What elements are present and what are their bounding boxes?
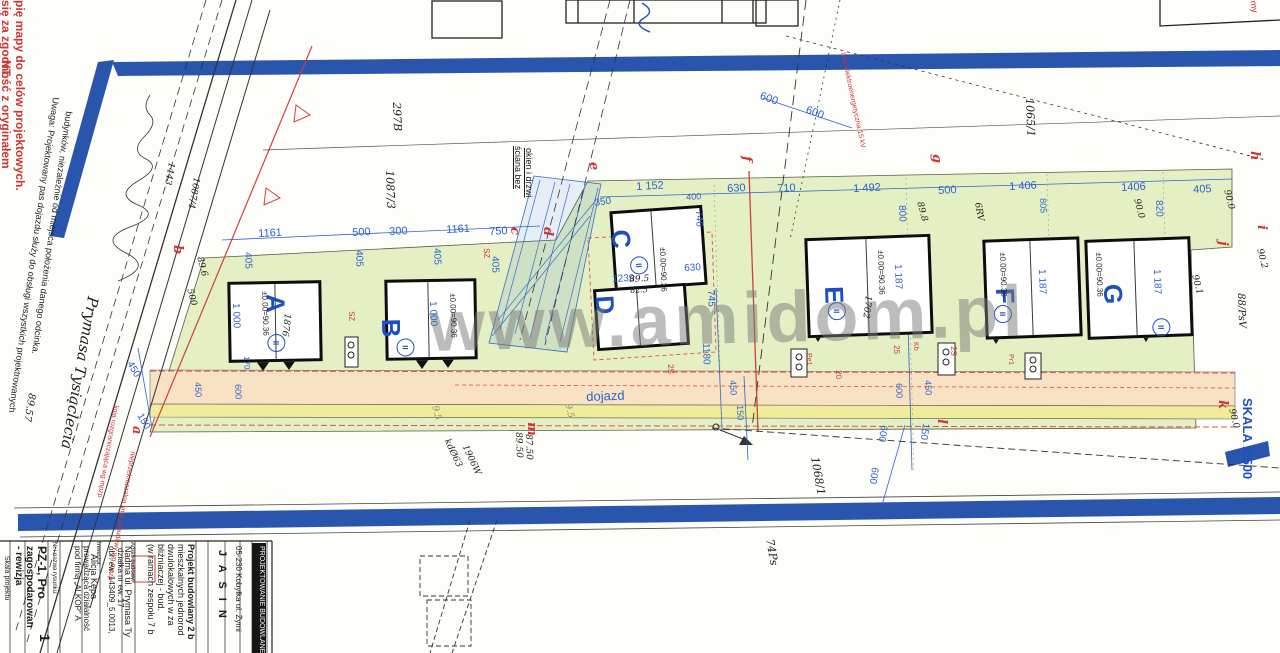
annotation-label: 1 187 xyxy=(892,264,903,289)
grid-marker: h xyxy=(1247,151,1261,160)
wavy-boundary xyxy=(113,95,153,281)
grid-marker: d xyxy=(540,227,554,236)
annotation-label: 1406 xyxy=(1121,182,1146,195)
building-partition xyxy=(1133,241,1138,335)
boundary-triangle xyxy=(294,105,310,122)
building-label: B xyxy=(375,318,406,337)
titleblock-revision-no: 1 xyxy=(37,634,52,642)
parcel-label: 1876 xyxy=(279,313,291,337)
annotation-label: 405 xyxy=(1193,184,1212,196)
storey-symbol: II xyxy=(1152,318,1171,337)
driveway-band xyxy=(150,370,1235,406)
watermark: www.amidom.pl xyxy=(428,270,1027,368)
annotation-label: 82.5 xyxy=(630,286,648,295)
annotation-label: 600 xyxy=(894,383,904,398)
grid-marker: i xyxy=(1254,225,1268,230)
titleblock-project: mieszkalnych jednorod xyxy=(176,544,185,636)
titleblock-drawing-no: PZ-1, Pro xyxy=(35,546,48,599)
annotation-label: SZ xyxy=(482,248,491,259)
annotation-label: 450 xyxy=(728,380,738,395)
annotation-label: 405 xyxy=(431,248,442,265)
building-label: C xyxy=(605,229,637,250)
parcel-label: 1065/1 xyxy=(1023,98,1036,137)
annotation-label: SZ xyxy=(347,311,356,322)
annotation-label: 1 406 xyxy=(1009,181,1037,194)
annotation-label: 600 xyxy=(875,425,888,443)
grid-marker: e xyxy=(586,162,600,170)
storey-symbol: II xyxy=(396,338,414,356)
dashed-structures xyxy=(420,520,497,653)
annotation-label: 400 xyxy=(686,192,702,202)
grid-marker: g xyxy=(929,154,943,163)
storey-symbol: II xyxy=(267,334,285,352)
annotation-label: Pe1 xyxy=(805,353,813,366)
annotation-label: 1161 xyxy=(258,228,282,241)
titleblock-office-address: 05-230 Kobyłka ul. Żymi xyxy=(234,546,242,632)
annotation-label: 630 xyxy=(727,183,746,195)
annotation-label: 2S xyxy=(666,364,675,374)
titleblock-address: obr. ew. 143409_5.0013, xyxy=(107,546,115,634)
grid-marker: l xyxy=(934,419,948,424)
parcel-label: 1702 xyxy=(860,295,872,319)
titleblock-address: działka nr ew. 17 xyxy=(116,548,124,608)
annotation-label: 1 000 xyxy=(427,301,438,326)
titleblock-project: dwulokalowych w za xyxy=(166,544,175,626)
annotation-label: 1 152 xyxy=(636,181,664,194)
annotation-label: 1 187 xyxy=(1036,269,1047,294)
annotation-label: 745 xyxy=(705,290,716,307)
annotation-label: 820 xyxy=(1153,200,1164,217)
annotation-label: 1 187 xyxy=(1151,269,1162,294)
annotation-label: 89.5 xyxy=(629,275,650,285)
stamp-text: się za zgodność z oryginałem xyxy=(0,0,12,169)
annotation-label: 500 xyxy=(938,185,957,197)
annotation-label: 600 xyxy=(866,467,879,485)
titleblock-investor: prowadząca działalność xyxy=(82,546,90,631)
grid-marker: j xyxy=(1215,241,1229,246)
titleblock-project: bliźniaczej - bud. xyxy=(156,544,165,611)
annotation-label: ±0.00=90.36 xyxy=(260,291,270,336)
titleblock-revision: - rewizja xyxy=(13,546,24,585)
existing-buildings xyxy=(432,0,1280,38)
grid-marker: k xyxy=(1215,400,1229,409)
annotation-label: Pr1 xyxy=(1007,354,1015,365)
annotation-label: 300 xyxy=(389,226,408,238)
grid-marker: c xyxy=(507,227,521,235)
annotation-label: 6RV xyxy=(972,202,985,222)
grid-marker: m xyxy=(524,422,538,436)
site-plan-sheet: AIIBIICIIDEIIFIIGII www.amidom.pl 116150… xyxy=(0,0,1280,653)
annotation-label: ±0.00=90.36 xyxy=(658,247,668,292)
annotation-label: 25 xyxy=(892,345,901,354)
annotation-label: 405 xyxy=(353,250,364,267)
annotation-label: 150 xyxy=(735,405,745,420)
annotation-label: my xyxy=(1248,0,1259,13)
grid-marker: b xyxy=(170,245,184,254)
driveway-label: dojazd xyxy=(586,389,625,404)
parcel-label: 1087/3 xyxy=(383,170,396,209)
titleblock-field-label: Adres budowy: xyxy=(129,542,135,582)
building-partition xyxy=(1029,241,1034,335)
titleblock-project: (w ramach zespołu 7 b xyxy=(146,544,155,635)
annotation-label: 805 xyxy=(1038,198,1048,213)
annotation-label: 450 xyxy=(923,380,933,395)
titleblock-scale: Skala projektu xyxy=(3,556,10,600)
scale-label: SKALA 1:500 xyxy=(1240,398,1254,479)
annotation-label: 1180 xyxy=(700,343,711,365)
grid-marker: a xyxy=(129,426,143,434)
annotation-label: 1 000 xyxy=(230,303,241,328)
titleblock-drawing-name: zagospodarowan xyxy=(24,546,35,628)
annotation-label: 2S xyxy=(949,346,958,356)
titleblock-project: Projekt budowlany 2 b xyxy=(186,544,195,640)
stamp-text: pię mapy do celów projektowych. xyxy=(13,0,26,191)
annotation-label: Kb xyxy=(912,342,920,351)
driveway-strip xyxy=(150,404,1235,419)
annotation-label: 1 492 xyxy=(853,183,881,196)
annotation-label: 630 xyxy=(684,263,701,274)
annotation-label: 1161 xyxy=(446,224,470,237)
tree-symbol xyxy=(639,3,650,32)
building-partition xyxy=(650,211,657,285)
titleblock-field-label: Nr i nazwa rysunku: xyxy=(51,542,57,595)
annotation-label: ±0.00=90.36 xyxy=(448,293,458,338)
titleblock-office-name: J A S I N xyxy=(215,550,227,621)
annotation-label: 20 xyxy=(834,370,843,379)
titleblock-field-label: Inwestor: xyxy=(95,542,101,566)
annotation-label: 150 xyxy=(917,423,930,441)
annotation-label: ±0.00=90.36 xyxy=(998,252,1008,297)
annotation-label: 500 xyxy=(352,227,371,239)
annotation-label: ±0.00=90.36 xyxy=(1094,252,1104,297)
wall-note: ściana bez xyxy=(513,146,522,189)
titleblock-header: PROJEKTOWANIE BUDOWLANE xyxy=(258,544,265,653)
dashed-boundary xyxy=(712,428,1280,468)
annotation-label: ±0.00=90.36 xyxy=(876,250,886,295)
annotation-label: 746 xyxy=(693,210,704,227)
road-bar-bottom xyxy=(18,497,1280,531)
annotation-label: 170 xyxy=(242,356,251,370)
parcel-label: 88/PsV xyxy=(1235,293,1247,328)
annotation-label: 750 xyxy=(489,226,508,238)
annotation-label: 800 xyxy=(896,205,907,222)
annotation-label: 405 xyxy=(242,252,253,269)
parcel-label: 297B xyxy=(390,102,403,131)
grid-marker: f xyxy=(739,156,753,162)
boundary-triangle xyxy=(264,188,280,205)
benchmark-arrowhead xyxy=(739,436,753,445)
annotation-label: 600 xyxy=(233,384,243,399)
road-bar-top xyxy=(112,50,1280,76)
annotation-label: 89.50 xyxy=(513,432,523,458)
wall-note: okien i drzwi xyxy=(524,148,533,198)
annotation-label: 710 xyxy=(777,183,796,195)
annotation-label: 450 xyxy=(193,382,203,397)
parcel-boundary xyxy=(263,116,1280,150)
annotation-label: 87.50 xyxy=(523,434,533,460)
titleblock-investor: pod firmą „ALKOP” A xyxy=(73,546,81,621)
annotation-label: 405 xyxy=(489,256,500,273)
